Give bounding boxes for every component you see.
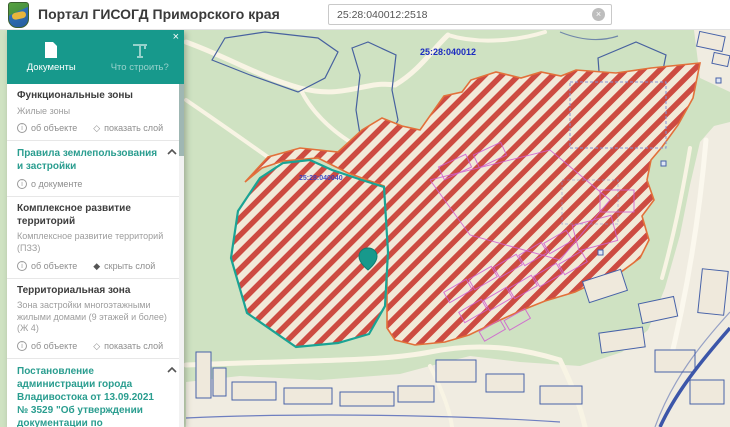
layer-diamond-icon: ◇: [93, 123, 100, 133]
about-document-link[interactable]: i о документе: [17, 179, 82, 189]
section-subtitle: Жилые зоны: [17, 106, 170, 118]
hide-layer-link[interactable]: ◆ скрыть слой: [93, 261, 155, 271]
section-title: Комплексное развитие территорий: [17, 203, 170, 228]
cadastral-label-2: 25:28:040040: [299, 175, 343, 182]
show-layer-link[interactable]: ◇ показать слой: [93, 341, 163, 351]
search-input[interactable]: [329, 9, 592, 21]
page-title: Портал ГИСОГД Приморского края: [38, 6, 280, 22]
collapse-chevron-icon[interactable]: [167, 367, 177, 373]
section-subtitle: Зона застройки многоэтажными жилыми дома…: [17, 300, 170, 335]
action-label: показать слой: [104, 341, 163, 351]
crane-icon: [132, 42, 148, 58]
cadastral-label-1: 25:28:040012: [420, 47, 476, 57]
layer-diamond-icon: ◇: [93, 341, 100, 351]
info-icon: i: [17, 179, 27, 189]
tab-what-to-build-label: Что строить?: [111, 62, 169, 73]
about-object-link[interactable]: i об объекте: [17, 123, 77, 133]
action-label: об объекте: [31, 341, 77, 351]
tab-what-to-build[interactable]: Что строить?: [96, 30, 185, 84]
primorsky-krai-coat-of-arms-logo: [8, 2, 29, 28]
info-icon: i: [17, 123, 27, 133]
scrollbar-thumb[interactable]: [179, 84, 184, 156]
document-link[interactable]: Правила землепользования и застройки: [17, 147, 170, 173]
search-box: ×: [328, 4, 612, 25]
layer-diamond-icon: ◆: [93, 261, 100, 271]
section-resolution-3529: Постановление администрации города Влади…: [7, 359, 184, 427]
collapse-chevron-icon[interactable]: [167, 149, 177, 155]
section-functional-zones: Функциональные зоны Жилые зоны i об объе…: [7, 84, 184, 140]
action-label: об объекте: [31, 261, 77, 271]
panel-tabs: Документы Что строить? ×: [7, 30, 184, 84]
documents-panel: Документы Что строить? × Функциональные …: [7, 30, 184, 427]
sidebar-scrollbar[interactable]: [179, 84, 184, 427]
close-icon[interactable]: ×: [173, 32, 179, 43]
section-territorial-zone: Территориальная зона Зона застройки мног…: [7, 279, 184, 359]
section-krt: Комплексное развитие территорий Комплекс…: [7, 197, 184, 277]
action-label: показать слой: [104, 123, 163, 133]
panel-body: Функциональные зоны Жилые зоны i об объе…: [7, 84, 184, 427]
document-link[interactable]: Постановление администрации города Влади…: [17, 365, 170, 427]
clear-search-icon[interactable]: ×: [592, 8, 605, 21]
tab-documents-label: Документы: [27, 62, 76, 73]
document-icon: [44, 42, 58, 58]
section-subtitle: Комплексное развитие территорий (ПЗЗ): [17, 231, 170, 254]
action-label: скрыть слой: [104, 261, 155, 271]
info-icon: i: [17, 261, 27, 271]
action-label: о документе: [31, 179, 82, 189]
show-layer-link[interactable]: ◇ показать слой: [93, 123, 163, 133]
about-object-link[interactable]: i об объекте: [17, 341, 77, 351]
action-label: об объекте: [31, 123, 77, 133]
section-title: Функциональные зоны: [17, 90, 170, 103]
about-object-link[interactable]: i об объекте: [17, 261, 77, 271]
info-icon: i: [17, 341, 27, 351]
tab-documents[interactable]: Документы: [7, 30, 96, 84]
top-bar: Портал ГИСОГД Приморского края ×: [0, 0, 730, 30]
section-title: Территориальная зона: [17, 285, 170, 298]
section-land-use-rules: Правила землепользования и застройки i о…: [7, 141, 184, 196]
